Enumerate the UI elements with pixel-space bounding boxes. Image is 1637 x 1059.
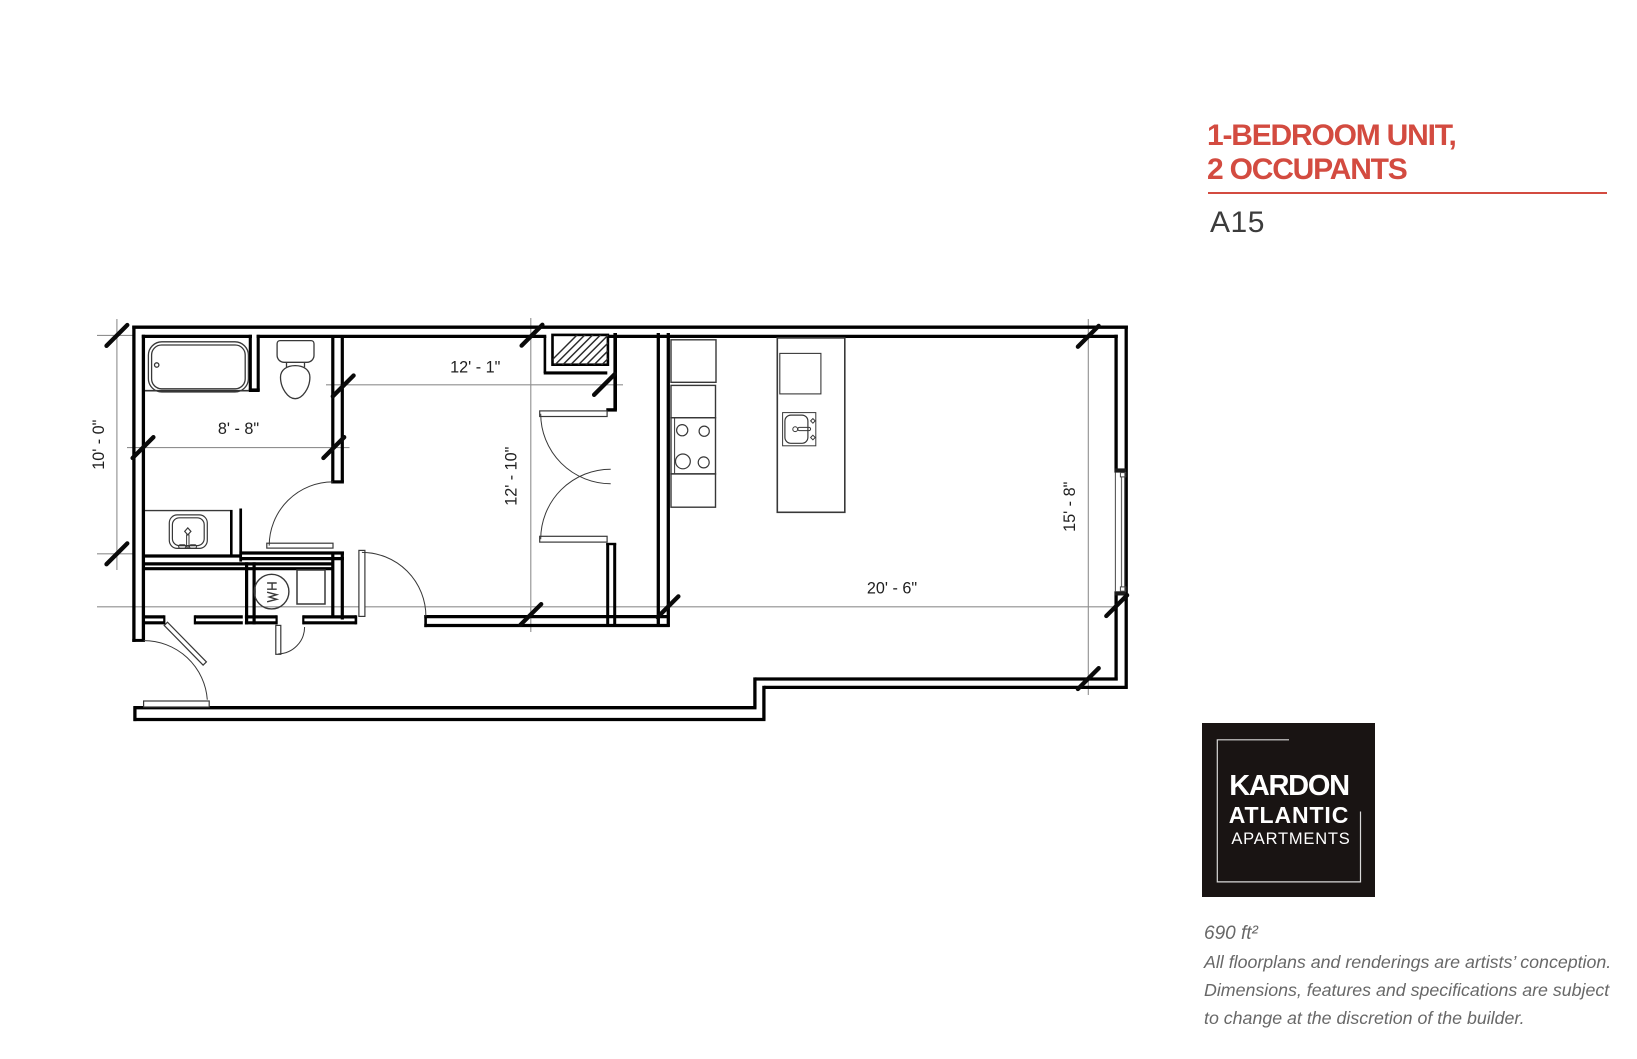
svg-text:12' - 1": 12' - 1" [450,359,500,377]
svg-text:10' - 0": 10' - 0" [90,419,108,469]
svg-text:12' - 10": 12' - 10" [503,446,521,505]
svg-text:15' - 8": 15' - 8" [1061,481,1079,531]
svg-text:20' - 6": 20' - 6" [867,580,917,598]
svg-text:8' - 8": 8' - 8" [218,420,259,438]
